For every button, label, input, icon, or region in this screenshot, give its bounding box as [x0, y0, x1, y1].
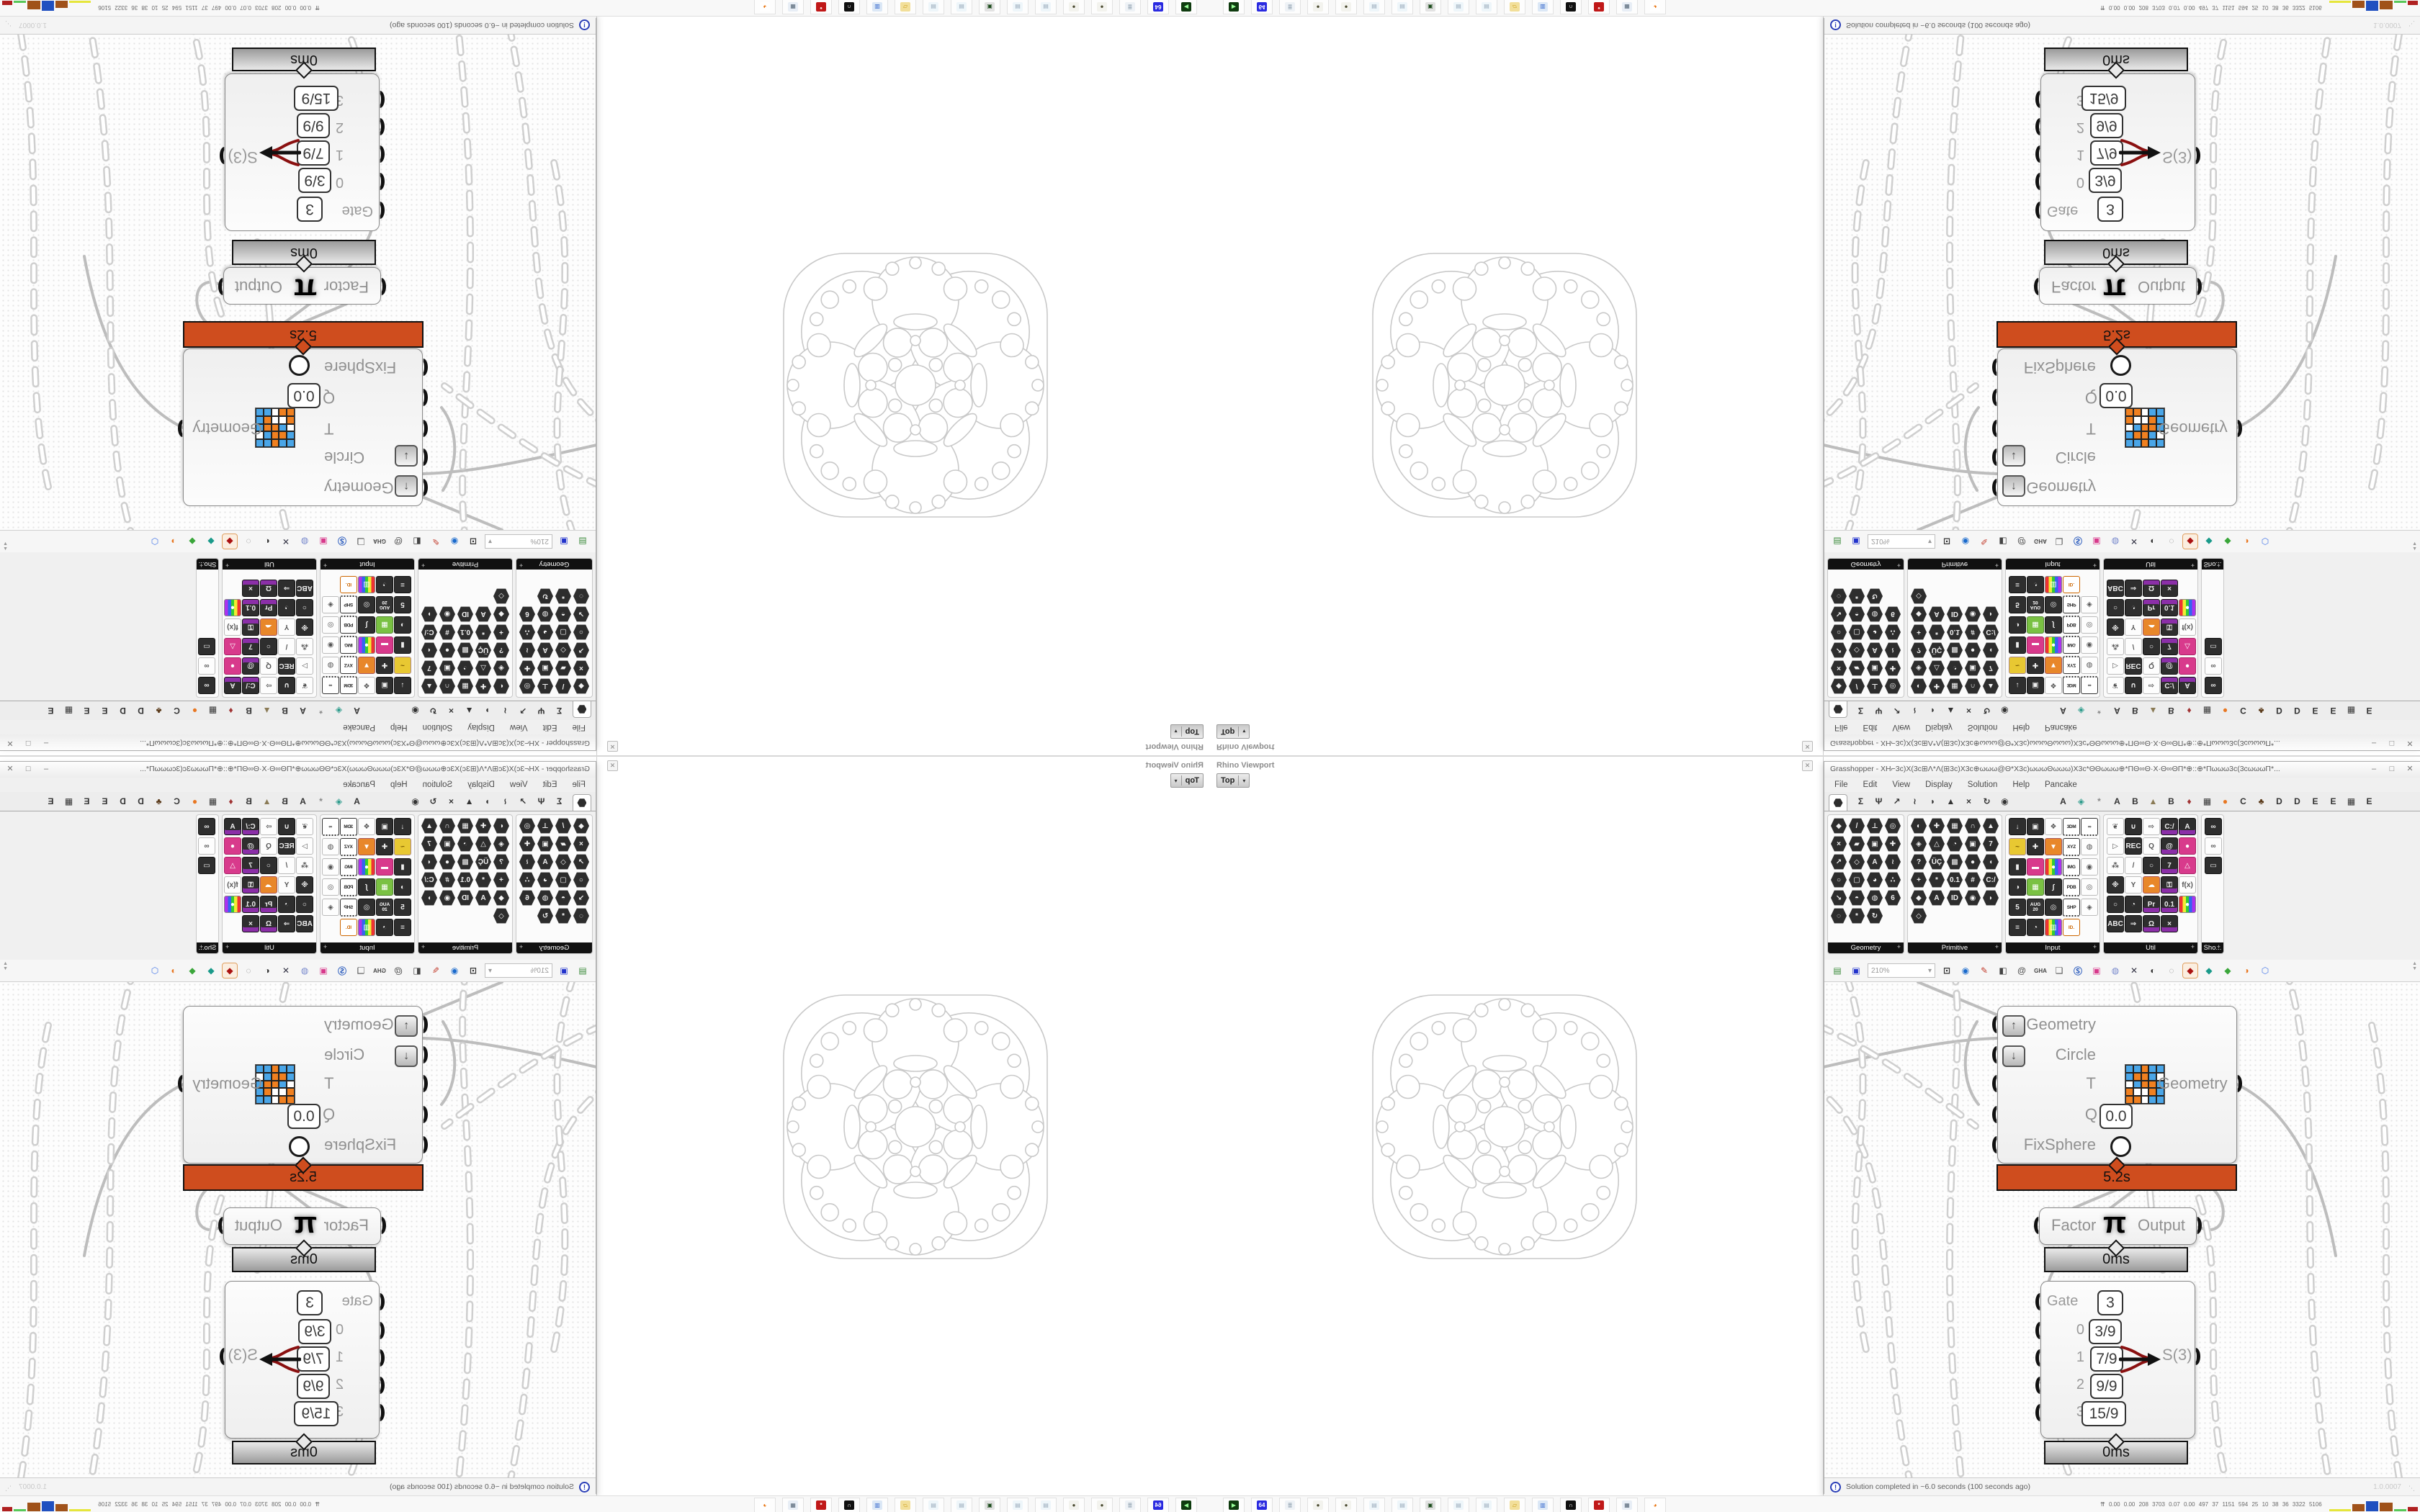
toolbar-scroll-arrows[interactable]: ▲▼: [2412, 961, 2417, 971]
close-icon[interactable]: ✕: [607, 741, 618, 752]
component-icon[interactable]: ↓: [2009, 677, 2026, 694]
component-icon[interactable]: ↻: [537, 588, 553, 604]
category-tab-11[interactable]: A: [351, 706, 363, 716]
gate-value-box-0[interactable]: 3: [297, 1290, 323, 1315]
component-icon[interactable]: ▲: [421, 678, 437, 694]
component-icon[interactable]: ≡: [2009, 919, 2026, 936]
taskbar-app-notepad-icon[interactable]: ▤: [1476, 0, 1497, 14]
component-icon[interactable]: Pr: [260, 896, 277, 913]
component-icon[interactable]: ⊥: [1867, 678, 1883, 694]
gha-icon[interactable]: GHA: [2033, 963, 2048, 978]
preview-shaded-icon[interactable]: ◆: [223, 534, 237, 549]
taskbar-app-notepad-icon[interactable]: ▤: [923, 0, 944, 14]
component-icon[interactable]: ◔: [278, 896, 295, 913]
component-icon[interactable]: 0.1: [1947, 624, 1963, 640]
component-icon[interactable]: ◎: [2081, 616, 2098, 634]
component-icon[interactable]: ◇: [1849, 854, 1865, 870]
component-icon[interactable]: *: [1849, 908, 1865, 924]
component-icon[interactable]: ▬: [2027, 636, 2044, 654]
component-icon[interactable]: ▷: [296, 837, 313, 855]
component-icon[interactable]: ○: [573, 872, 589, 888]
gate-value-box-3[interactable]: 9/9: [297, 1374, 330, 1399]
component-icon[interactable]: ◉: [322, 858, 339, 876]
component-icon[interactable]: /: [278, 857, 295, 874]
ribbon-panel-label[interactable]: Geometry+: [1828, 942, 1904, 953]
component-icon[interactable]: ❖: [2045, 677, 2062, 694]
component-icon[interactable]: ◆: [1831, 818, 1847, 834]
pin-green-icon[interactable]: ◆: [2220, 963, 2235, 978]
component-icon[interactable]: Ω: [260, 915, 277, 932]
taskbar-app-sphere-icon[interactable]: ●: [1091, 1498, 1113, 1512]
component-icon[interactable]: *: [555, 588, 571, 604]
component-icon[interactable]: ◔: [1947, 836, 1963, 852]
taskbar-app-sphere-icon[interactable]: ●: [1335, 0, 1357, 14]
menu-item-view[interactable]: View: [1892, 723, 1910, 732]
component-icon[interactable]: ●: [224, 599, 241, 616]
grasshopper-titlebar[interactable]: Grasshopper - XH⌐3c)X(3c⊞Λ*Λ(⊞3c)X3c⊕ωωω…: [1824, 734, 2420, 750]
panel-expand-icon[interactable]: +: [323, 943, 327, 950]
gate-value-box-3[interactable]: 9/9: [297, 113, 330, 138]
component-icon[interactable]: ▷: [2107, 837, 2124, 855]
component-icon[interactable]: Q: [260, 837, 277, 855]
component-icon[interactable]: /: [2125, 857, 2142, 874]
component-icon[interactable]: C:/: [421, 872, 437, 888]
flatten-arrow-icon[interactable]: ↑: [395, 475, 418, 497]
component-icon[interactable]: ●: [2179, 657, 2196, 675]
category-tab-20[interactable]: ●: [2219, 706, 2231, 716]
component-icon[interactable]: ⊥: [537, 678, 553, 694]
category-tab-2[interactable]: Ψ: [1873, 706, 1885, 716]
chevron-down-icon[interactable]: ▾: [1242, 778, 1245, 784]
component-icon[interactable]: ✚: [1885, 836, 1901, 852]
component-icon[interactable]: ○: [260, 638, 277, 655]
component-icon[interactable]: ⚿: [2161, 618, 2178, 636]
component-icon[interactable]: ◔: [1947, 660, 1963, 676]
window-icon[interactable]: ❏: [2052, 534, 2066, 549]
component-icon[interactable]: ◈: [2081, 596, 2098, 613]
component-icon[interactable]: +: [1911, 872, 1927, 888]
gate-value-box-0[interactable]: 3: [297, 197, 323, 222]
grasshopper-titlebar[interactable]: Grasshopper - XH⌐3c)X(3c⊞Λ*Λ(⊞3c)X3c⊕ωωω…: [0, 734, 596, 750]
minimize-icon[interactable]: –: [2368, 737, 2380, 748]
panel-expand-icon[interactable]: +: [2217, 562, 2220, 569]
component-icon[interactable]: ◍: [1867, 890, 1883, 906]
menu-item-display[interactable]: Display: [467, 723, 495, 732]
sketch-icon[interactable]: ✎: [429, 534, 443, 549]
component-icon[interactable]: ↗: [573, 642, 589, 658]
category-tab-25[interactable]: E: [99, 796, 111, 806]
component-icon[interactable]: /: [2125, 638, 2142, 655]
category-tab-17[interactable]: B: [2165, 706, 2177, 716]
zoom-level-combo[interactable]: 210%▾: [485, 963, 552, 978]
component-icon[interactable]: ◎: [1885, 818, 1901, 834]
component-icon[interactable]: ∩: [439, 678, 455, 694]
category-tab-1[interactable]: Σ: [553, 796, 565, 806]
component-icon[interactable]: ∩: [1965, 818, 1981, 834]
ball-blue-icon[interactable]: ⬡: [148, 534, 162, 549]
component-icon[interactable]: ○: [2143, 638, 2160, 655]
component-icon[interactable]: 5: [394, 596, 411, 613]
component-icon[interactable]: ○: [573, 624, 589, 640]
component-icon[interactable]: PDB: [2063, 616, 2080, 634]
category-tab-2[interactable]: Ψ: [1873, 796, 1885, 806]
category-tab-23[interactable]: D: [135, 706, 147, 716]
component-icon[interactable]: AUG 20: [376, 596, 393, 613]
category-tab-1[interactable]: Σ: [553, 706, 565, 716]
component-icon[interactable]: 7: [1983, 836, 1999, 852]
taskbar-app-document-icon[interactable]: ≣: [1119, 0, 1141, 14]
category-tab-26[interactable]: E: [2327, 796, 2339, 806]
category-tab-26[interactable]: E: [2327, 706, 2339, 716]
menu-item-pancake[interactable]: Pancake: [343, 723, 375, 732]
component-icon[interactable]: ◕: [1867, 624, 1883, 640]
grasshopper-canvas[interactable]: ↑ ↓ Geometry Circle T Q FixSphere 0.0 Ge…: [0, 35, 596, 530]
zoom-level-combo[interactable]: 210%▾: [1868, 963, 1935, 978]
component-icon[interactable]: *: [555, 908, 571, 924]
pi-component[interactable]: Factor π Output: [223, 1207, 381, 1245]
category-tab-27[interactable]: ▦: [63, 706, 75, 716]
category-tab-22[interactable]: ♣: [2255, 706, 2267, 716]
component-icon[interactable]: ▬: [376, 858, 393, 876]
component-icon[interactable]: ∩: [439, 818, 455, 834]
menu-item-display[interactable]: Display: [467, 780, 495, 789]
ribbon-panel-label[interactable]: Util+: [223, 559, 316, 570]
component-icon[interactable]: ▩: [1947, 642, 1963, 658]
category-tab-9[interactable]: ◉: [1999, 706, 2011, 716]
taskbar-app-red-gear-icon[interactable]: *: [1588, 1498, 1610, 1512]
component-icon[interactable]: ▣: [376, 677, 393, 694]
component-icon[interactable]: @: [2161, 657, 2178, 675]
gate-value-box-4[interactable]: 15/9: [2081, 1401, 2126, 1426]
component-icon[interactable]: ↓: [394, 677, 411, 694]
toolbar-scroll-arrows[interactable]: ▲▼: [3, 961, 8, 971]
component-icon[interactable]: ▦: [2027, 616, 2044, 634]
input-connector-fixsphere[interactable]: [1992, 1136, 2002, 1153]
grasshopper-canvas[interactable]: ↑ ↓ Geometry Circle T Q FixSphere 0.0 Ge…: [1824, 982, 2420, 1477]
component-icon[interactable]: ▦: [376, 878, 393, 896]
component-icon[interactable]: ID: [457, 890, 473, 906]
taskbar-app-notepad-icon[interactable]: ▤: [1476, 1498, 1497, 1512]
fixsphere-component[interactable]: ↑ ↓ Geometry Circle T Q FixSphere 0.0 Ge…: [183, 348, 423, 506]
zoom-extents-icon[interactable]: ⊡: [1940, 534, 1954, 549]
category-tab-5[interactable]: ◗: [481, 796, 493, 806]
category-tab-12[interactable]: ◈: [333, 796, 345, 806]
category-tab-24[interactable]: D: [2291, 796, 2303, 806]
component-icon[interactable]: ▬: [376, 636, 393, 654]
component-icon[interactable]: ▣: [439, 660, 455, 676]
gha-icon[interactable]: GHA: [372, 963, 387, 978]
component-icon[interactable]: ◉: [322, 636, 339, 654]
component-icon[interactable]: △: [475, 836, 491, 852]
component-icon[interactable]: ◔: [2027, 919, 2044, 936]
component-icon[interactable]: 6: [519, 606, 535, 622]
taskbar-app-emulator-icon[interactable]: ▶: [1175, 1498, 1197, 1512]
menu-item-file[interactable]: File: [572, 723, 586, 732]
component-icon[interactable]: 7: [1983, 660, 1999, 676]
package-icon[interactable]: ▣: [316, 534, 331, 549]
component-icon[interactable]: ◔: [457, 660, 473, 676]
ribbon-panel-label[interactable]: Util+: [223, 942, 316, 953]
component-icon[interactable]: ◖: [421, 854, 437, 870]
category-tab-18[interactable]: ♦: [2183, 796, 2195, 806]
category-tab-2[interactable]: Ψ: [535, 706, 547, 716]
component-icon[interactable]: ※: [2107, 618, 2124, 636]
zoom-extents-icon[interactable]: ⊡: [466, 534, 480, 549]
preview-eye-icon[interactable]: ◉: [447, 963, 462, 978]
component-icon[interactable]: ●: [2179, 599, 2196, 616]
component-icon[interactable]: *: [1929, 872, 1945, 888]
component-icon[interactable]: ∞: [2081, 818, 2098, 836]
gate-input-connector-4[interactable]: [2035, 1404, 2045, 1421]
component-icon[interactable]: ▣: [537, 836, 553, 852]
component-icon[interactable]: △: [1929, 660, 1945, 676]
component-icon[interactable]: ≀: [1885, 642, 1901, 658]
component-icon[interactable]: ⊥: [1867, 818, 1883, 834]
preview-shaded-icon[interactable]: ◆: [223, 963, 237, 978]
category-tab-15[interactable]: B: [279, 706, 291, 716]
menu-item-edit[interactable]: Edit: [543, 780, 557, 789]
fixsphere-component[interactable]: ↑ ↓ Geometry Circle T Q FixSphere 0.0 Ge…: [183, 1006, 423, 1164]
component-icon[interactable]: ▣: [1867, 660, 1883, 676]
save-file-icon[interactable]: ▣: [1849, 963, 1863, 978]
taskbar-app-monitor-icon[interactable]: ▣: [979, 1498, 1000, 1512]
exoskeleton-icon[interactable]: ◧: [1996, 534, 2010, 549]
component-icon[interactable]: 0.1: [2161, 599, 2178, 616]
component-icon[interactable]: ▭: [198, 638, 215, 655]
category-tab-14[interactable]: A: [297, 706, 309, 716]
component-icon[interactable]: ◕: [1867, 872, 1883, 888]
taskbar-app-floppy-64-icon[interactable]: 64: [1147, 0, 1169, 14]
component-icon[interactable]: /: [555, 678, 571, 694]
menu-item-display[interactable]: Display: [1925, 723, 1953, 732]
component-icon[interactable]: ▮: [394, 636, 411, 654]
taskbar-app-notepad-icon[interactable]: ▤: [1007, 1498, 1028, 1512]
component-icon[interactable]: ✚: [519, 836, 535, 852]
category-tab-7[interactable]: ×: [445, 796, 457, 806]
input-connector-factor[interactable]: [2034, 1217, 2043, 1234]
category-tab-1[interactable]: Σ: [1855, 706, 1867, 716]
category-tab-28[interactable]: E: [45, 796, 57, 806]
chevron-down-icon[interactable]: ▾: [488, 967, 492, 975]
ribbon-panel-label[interactable]: Geometry+: [516, 942, 592, 953]
component-icon[interactable]: ~: [394, 657, 411, 674]
menu-item-pancake[interactable]: Pancake: [2045, 723, 2077, 732]
gate-value-box-0[interactable]: 3: [2097, 1290, 2123, 1315]
taskbar-app-sphere-icon[interactable]: ●: [1307, 0, 1329, 14]
component-icon[interactable]: ●: [439, 642, 455, 658]
component-icon[interactable]: ×: [1831, 660, 1847, 676]
component-icon[interactable]: /: [1849, 678, 1865, 694]
category-tab-19[interactable]: ▦: [207, 796, 219, 806]
component-icon[interactable]: C:/: [1983, 872, 1999, 888]
category-tab-18[interactable]: ♦: [2183, 706, 2195, 716]
fixsphere-toggle[interactable]: [2110, 1136, 2131, 1157]
component-icon[interactable]: XYZ: [340, 838, 357, 856]
component-icon[interactable]: ◗: [421, 890, 437, 906]
taskbar-app-calculator-icon[interactable]: ▦: [1616, 1498, 1638, 1512]
component-icon[interactable]: ×: [242, 580, 259, 597]
component-icon[interactable]: A: [224, 818, 241, 835]
sketch-icon[interactable]: ✎: [1977, 963, 1991, 978]
component-icon[interactable]: ☁: [2143, 876, 2160, 894]
gate-value-box-1[interactable]: 3/9: [2089, 1319, 2122, 1344]
pi-component[interactable]: Factor π Output: [223, 267, 381, 305]
taskbar-app-notepad-icon[interactable]: ▤: [1007, 0, 1028, 14]
category-tab-8[interactable]: ↻: [427, 796, 439, 806]
component-icon[interactable]: ☁: [260, 876, 277, 894]
taskbar-app-sphere-icon[interactable]: ●: [1091, 0, 1113, 14]
fractal-circle-packing-drawing[interactable]: [764, 976, 1067, 1278]
taskbar-app-firefox-icon[interactable]: ◕: [1644, 0, 1666, 14]
component-icon[interactable]: ◓: [555, 606, 571, 622]
fixsphere-toggle[interactable]: [2110, 355, 2131, 376]
component-icon[interactable]: △: [475, 660, 491, 676]
gate-value-box-4[interactable]: 15/9: [2081, 86, 2126, 111]
category-tab-4[interactable]: ≀: [1909, 706, 1921, 716]
lightbulb-icon[interactable]: ◍: [297, 534, 312, 549]
category-tab-8[interactable]: ↻: [1981, 706, 1993, 716]
package-icon[interactable]: ▣: [2089, 963, 2104, 978]
component-icon[interactable]: ↘: [1831, 890, 1847, 906]
component-icon[interactable]: ▮: [394, 858, 411, 876]
component-icon[interactable]: ÜÇ: [475, 854, 491, 870]
mail-icon[interactable]: @: [391, 534, 405, 549]
gha-icon[interactable]: GHA: [2033, 534, 2048, 549]
taskbar-app-notepad-icon[interactable]: ▤: [1035, 1498, 1057, 1512]
category-tab-7[interactable]: ×: [1963, 796, 1975, 806]
fixsphere-toggle[interactable]: [289, 355, 310, 376]
menu-item-edit[interactable]: Edit: [1863, 780, 1878, 789]
preview-eye-icon[interactable]: ◉: [447, 534, 462, 549]
chevron-down-icon[interactable]: ▾: [1928, 538, 1932, 546]
component-icon[interactable]: ◍: [1867, 606, 1883, 622]
category-tab-7[interactable]: ×: [445, 706, 457, 716]
component-icon[interactable]: 0.1: [1947, 872, 1963, 888]
component-icon[interactable]: #: [439, 624, 455, 640]
component-icon[interactable]: 3DM: [2063, 676, 2080, 694]
preview-dark-icon[interactable]: ◐: [260, 963, 274, 978]
finder-icon[interactable]: Ⓢ: [2071, 534, 2085, 549]
component-icon[interactable]: Q: [2143, 837, 2160, 855]
component-icon[interactable]: +: [493, 624, 509, 640]
component-icon[interactable]: ◓: [1849, 606, 1865, 622]
component-icon[interactable]: ⊥: [537, 818, 553, 834]
component-icon[interactable]: A: [224, 677, 241, 694]
component-icon[interactable]: Y: [278, 876, 295, 894]
component-icon[interactable]: ≀: [519, 854, 535, 870]
pin-teal-icon[interactable]: ◆: [204, 963, 218, 978]
component-icon[interactable]: ☁: [2143, 618, 2160, 636]
component-icon[interactable]: ▰: [1849, 660, 1865, 676]
component-icon[interactable]: △: [2179, 857, 2196, 874]
component-icon[interactable]: ○: [1831, 872, 1847, 888]
taskbar-app-notepad-icon[interactable]: ▤: [1448, 1498, 1469, 1512]
category-tab-27[interactable]: ▦: [2345, 706, 2357, 716]
gate-input-connector-3[interactable]: [2035, 1377, 2045, 1394]
fixsphere-component[interactable]: ↑ ↓ Geometry Circle T Q FixSphere 0.0 Ge…: [1997, 348, 2237, 506]
exoskeleton-icon[interactable]: ◧: [1996, 963, 2010, 978]
ribbon-panel-label[interactable]: Primitive+: [418, 559, 512, 570]
taskbar-app-display-settings-icon[interactable]: ▥: [866, 0, 888, 14]
category-tab-18[interactable]: ♦: [225, 796, 237, 806]
gate-value-box-4[interactable]: 15/9: [294, 1401, 339, 1426]
component-icon[interactable]: ✚: [376, 657, 393, 674]
component-icon[interactable]: ABC: [2107, 580, 2124, 597]
gate-value-box-0[interactable]: 3: [2097, 197, 2123, 222]
component-icon[interactable]: ▩: [457, 642, 473, 658]
close-icon[interactable]: ✕: [607, 760, 618, 771]
pin-green-icon[interactable]: ◆: [185, 534, 200, 549]
taskbar-app-monitor-icon[interactable]: ▣: [1420, 0, 1441, 14]
flatten-arrow-icon[interactable]: ↑: [395, 1015, 418, 1037]
component-icon[interactable]: ↻: [1867, 588, 1883, 604]
component-icon[interactable]: ▢: [1849, 872, 1865, 888]
component-icon[interactable]: ∴: [1885, 872, 1901, 888]
component-icon[interactable]: ◉: [1965, 606, 1981, 622]
wires-icon[interactable]: ✕: [279, 963, 293, 978]
component-icon[interactable]: ◉: [2081, 636, 2098, 654]
sketch-icon[interactable]: ✎: [1977, 534, 1991, 549]
component-icon[interactable]: ◌: [1831, 588, 1847, 604]
input-connector-q[interactable]: [1992, 389, 2002, 406]
category-tab-1[interactable]: Σ: [1855, 796, 1867, 806]
preview-dark-icon[interactable]: ◐: [260, 534, 274, 549]
component-icon[interactable]: ※: [296, 876, 313, 894]
component-icon[interactable]: f(x): [2179, 618, 2196, 636]
component-icon[interactable]: ≡: [394, 919, 411, 936]
component-icon[interactable]: ↻: [537, 908, 553, 924]
component-icon[interactable]: ✚: [1885, 660, 1901, 676]
component-icon[interactable]: ⚿: [2161, 876, 2178, 894]
component-icon[interactable]: ↻: [1867, 908, 1883, 924]
minimize-icon[interactable]: –: [2368, 764, 2380, 775]
component-icon[interactable]: ○: [296, 896, 313, 913]
gate-value-box-4[interactable]: 15/9: [294, 86, 339, 111]
menu-item-edit[interactable]: Edit: [1863, 723, 1878, 732]
component-icon[interactable]: ▲: [1983, 818, 1999, 834]
component-icon[interactable]: 7: [421, 836, 437, 852]
component-icon[interactable]: A: [475, 890, 491, 906]
maximize-icon[interactable]: □: [2386, 764, 2398, 775]
component-icon[interactable]: REC: [2125, 657, 2142, 675]
component-icon[interactable]: *: [475, 872, 491, 888]
fractal-circle-packing-drawing[interactable]: [1353, 234, 1656, 536]
component-icon[interactable]: ❖: [358, 818, 375, 835]
zoom-level-combo[interactable]: 210%▾: [1868, 534, 1935, 549]
category-tab-11[interactable]: A: [2057, 706, 2069, 716]
component-icon[interactable]: ◇: [493, 588, 509, 604]
taskbar-app-sphere-icon[interactable]: ●: [1335, 1498, 1357, 1512]
component-icon[interactable]: PDB: [340, 878, 357, 896]
component-icon[interactable]: ▣: [1867, 836, 1883, 852]
exoskeleton-icon[interactable]: ◧: [410, 534, 424, 549]
component-icon[interactable]: ▼: [2045, 838, 2062, 855]
component-icon[interactable]: ▭: [2205, 857, 2222, 874]
component-icon[interactable]: ∞: [322, 818, 339, 836]
category-tab-4[interactable]: ≀: [1909, 796, 1921, 806]
component-icon[interactable]: ↓: [394, 818, 411, 835]
component-icon[interactable]: ∪: [278, 818, 295, 835]
component-icon[interactable]: ◐: [1911, 818, 1927, 834]
component-icon[interactable]: ⇒: [2125, 580, 2142, 597]
component-icon[interactable]: ●: [358, 636, 375, 654]
component-icon[interactable]: ◗: [1983, 606, 1999, 622]
component-icon[interactable]: A: [1867, 854, 1883, 870]
component-icon[interactable]: Y: [2125, 876, 2142, 894]
component-icon[interactable]: /: [278, 638, 295, 655]
menu-item-view[interactable]: View: [510, 723, 528, 732]
component-icon[interactable]: Y: [2125, 618, 2142, 636]
